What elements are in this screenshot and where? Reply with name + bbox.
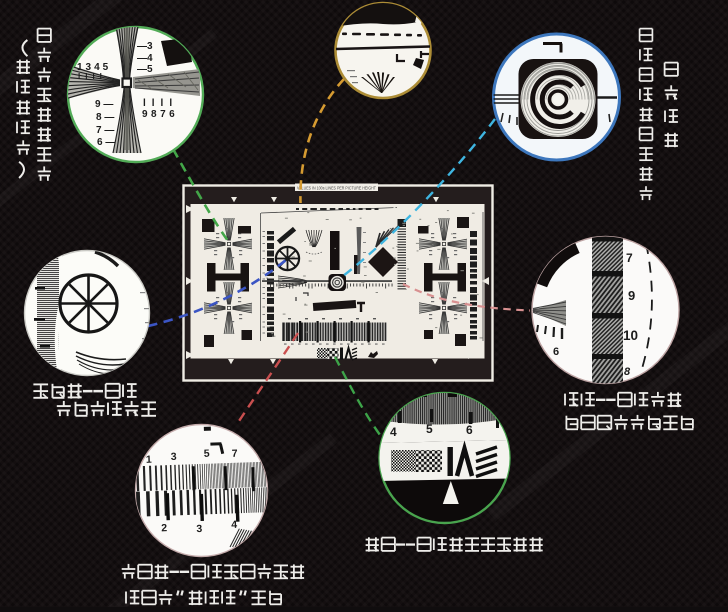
svg-text:2: 2 — [161, 522, 167, 534]
svg-text:6: 6 — [466, 423, 473, 437]
svg-text:6 —: 6 — — [97, 137, 115, 148]
svg-text:9 —: 9 — — [95, 99, 113, 110]
svg-text:5: 5 — [426, 422, 433, 436]
svg-text:7: 7 — [232, 448, 238, 460]
svg-text:llll: llll — [78, 72, 107, 81]
svg-text:7: 7 — [626, 251, 633, 265]
svg-text:4: 4 — [390, 425, 397, 439]
svg-text:VALUES IN 100s LINES PER PICTU: VALUES IN 100s LINES PER PICTURE HEIGHT — [297, 185, 376, 190]
svg-text:6: 6 — [553, 346, 559, 358]
svg-text:9: 9 — [628, 288, 635, 303]
svg-text:—3: —3 — [137, 41, 153, 52]
svg-text:5: 5 — [204, 448, 210, 460]
svg-text:8: 8 — [624, 366, 631, 378]
svg-text:9876: 9876 — [142, 109, 178, 120]
svg-text:3: 3 — [196, 523, 202, 535]
svg-text:1: 1 — [146, 454, 152, 466]
svg-text:10: 10 — [623, 328, 638, 343]
svg-text:llll: llll — [143, 98, 178, 109]
svg-text:4: 4 — [231, 519, 237, 531]
svg-text:8 —: 8 — — [96, 112, 114, 123]
svg-text:—4: —4 — [137, 53, 153, 64]
svg-text:3: 3 — [171, 451, 177, 463]
svg-text:—5: —5 — [137, 64, 153, 75]
svg-text:7 —: 7 — — [96, 125, 114, 136]
